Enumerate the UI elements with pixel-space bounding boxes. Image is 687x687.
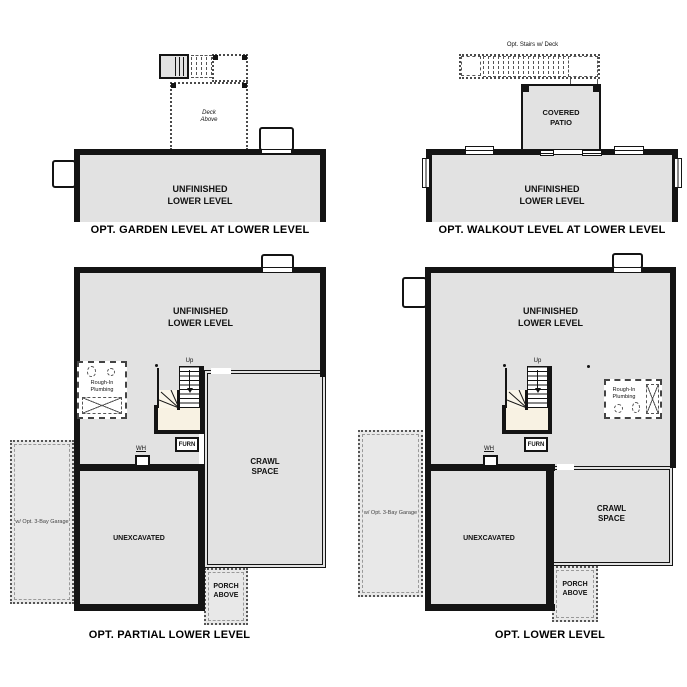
window-sill [263, 267, 292, 273]
floor-plan-sheet: Deck Above UNFINISHED LOWER LEVEL OPT. G… [0, 0, 687, 687]
deck-stair-box [461, 56, 481, 76]
window [402, 277, 427, 308]
plan-walkout-level: Opt. Stairs w/ Deck COVERED PATIO UNFINI… [395, 40, 687, 245]
water-heater-label: WH [129, 446, 153, 453]
window [614, 146, 644, 155]
plan-caption: OPT. GARDEN LEVEL AT LOWER LEVEL [74, 224, 326, 236]
stair-landing [506, 408, 548, 430]
sink-fixture [107, 368, 115, 376]
stair-landing [158, 408, 200, 430]
window [465, 146, 494, 155]
staircase: Up [502, 362, 552, 437]
wall-segment [525, 390, 528, 410]
garage-option-area: w/ Opt. 3-Bay Garage [358, 430, 423, 597]
wall-segment [177, 390, 180, 410]
garage-option-label: w/ Opt. 3-Bay Garage [12, 519, 72, 526]
room-label: UNFINISHED LOWER LEVEL [79, 306, 322, 329]
window [582, 150, 602, 156]
crawl-space-label: CRAWL SPACE [550, 504, 673, 525]
wall-segment [154, 430, 204, 434]
plan-caption: OPT. PARTIAL LOWER LEVEL [28, 629, 311, 641]
winder-treads [507, 390, 527, 408]
crawl-vent-gap [211, 368, 231, 374]
stair-direction-arrow [189, 370, 190, 390]
toilet-fixture [614, 404, 623, 413]
garage-option-area: w/ Opt. 3-Bay Garage [10, 440, 74, 604]
toilet-fixture [87, 366, 96, 377]
rough-in-plumbing-area: Rough-In Plumbing [604, 379, 662, 419]
crawl-space-label: CRAWL SPACE [204, 457, 326, 478]
water-heater-label: WH [477, 446, 501, 453]
wall-segment [74, 604, 205, 611]
window [540, 150, 554, 156]
unexcavated-label: UNEXCAVATED [429, 534, 549, 543]
window-sill [614, 267, 641, 273]
stair-post-dot [155, 364, 158, 367]
rough-in-label: Rough-In Plumbing [607, 387, 641, 400]
stair-treads [175, 57, 186, 76]
tub-fixture [82, 397, 122, 414]
room-label: UNFINISHED LOWER LEVEL [74, 184, 326, 207]
wall-segment [548, 366, 552, 434]
deck-stair-landing [159, 54, 189, 79]
wall-segment [670, 267, 676, 468]
stair-direction-arrow [537, 370, 538, 390]
sink-fixture [632, 402, 640, 413]
wall-segment [425, 604, 555, 611]
tub-fixture [646, 384, 659, 414]
deck-above-area: Deck Above [170, 82, 248, 150]
patio-post [523, 86, 529, 92]
plan-caption: OPT. LOWER LEVEL [410, 629, 687, 641]
crawl-vent-gap [557, 464, 574, 470]
porch-above-label: PORCH ABOVE [554, 580, 596, 598]
deck-post [213, 55, 218, 60]
window [52, 160, 76, 188]
stair-post-dot [503, 364, 506, 367]
deck-above-label: Deck Above [172, 110, 246, 124]
room-label: UNFINISHED LOWER LEVEL [429, 306, 672, 329]
rough-in-plumbing-area: Rough-In Plumbing [77, 361, 127, 419]
wall-segment [198, 471, 205, 611]
opt-stairs-label: Opt. Stairs w/ Deck [481, 42, 584, 49]
porch-above-area: PORCH ABOVE [204, 568, 248, 625]
winder-treads [159, 390, 179, 408]
stair-direction-arrowhead [187, 388, 193, 393]
patio-post [593, 86, 599, 92]
window [259, 127, 294, 151]
room-label: UNFINISHED LOWER LEVEL [426, 184, 678, 207]
post-dot [587, 365, 590, 368]
plan-partial-lower-level: w/ Opt. 3-Bay Garage PORCH ABOVE UNFINIS… [5, 250, 350, 650]
covered-patio-label: COVERED PATIO [523, 108, 599, 128]
stair-direction-arrowhead [535, 388, 541, 393]
water-heater-box [135, 455, 150, 467]
porch-above-label: PORCH ABOVE [206, 582, 246, 600]
stairs-up-label: Up [179, 358, 200, 365]
furnace-box: FURN [175, 437, 199, 452]
rough-in-label: Rough-In Plumbing [81, 380, 123, 393]
wall-segment [502, 430, 552, 434]
water-heater-box [483, 455, 498, 467]
deck-stair-dashed-treads [191, 55, 212, 78]
stairs-up-label: Up [527, 358, 548, 365]
deck-post [242, 83, 247, 88]
deck-post [242, 55, 247, 60]
deck-upper-outline [212, 54, 248, 82]
deck-stair-dashed-treads [483, 56, 566, 77]
garage-option-label: w/ Opt. 3-Bay Garage [361, 510, 421, 517]
unexcavated-label: UNEXCAVATED [79, 534, 199, 543]
deck-post [171, 83, 176, 88]
plan-lower-level: w/ Opt. 3-Bay Garage PORCH ABOVE UNFINIS… [352, 250, 687, 650]
plan-caption: OPT. WALKOUT LEVEL AT LOWER LEVEL [426, 224, 678, 236]
window-sill [262, 149, 291, 154]
furnace-box: FURN [524, 437, 548, 452]
porch-above-area: PORCH ABOVE [552, 566, 598, 622]
staircase: Up [154, 362, 204, 437]
covered-patio: COVERED PATIO [521, 84, 601, 151]
deck-landing-box [568, 56, 598, 77]
wall-segment [200, 366, 204, 434]
plan-garden-level: Deck Above UNFINISHED LOWER LEVEL OPT. G… [40, 40, 340, 245]
